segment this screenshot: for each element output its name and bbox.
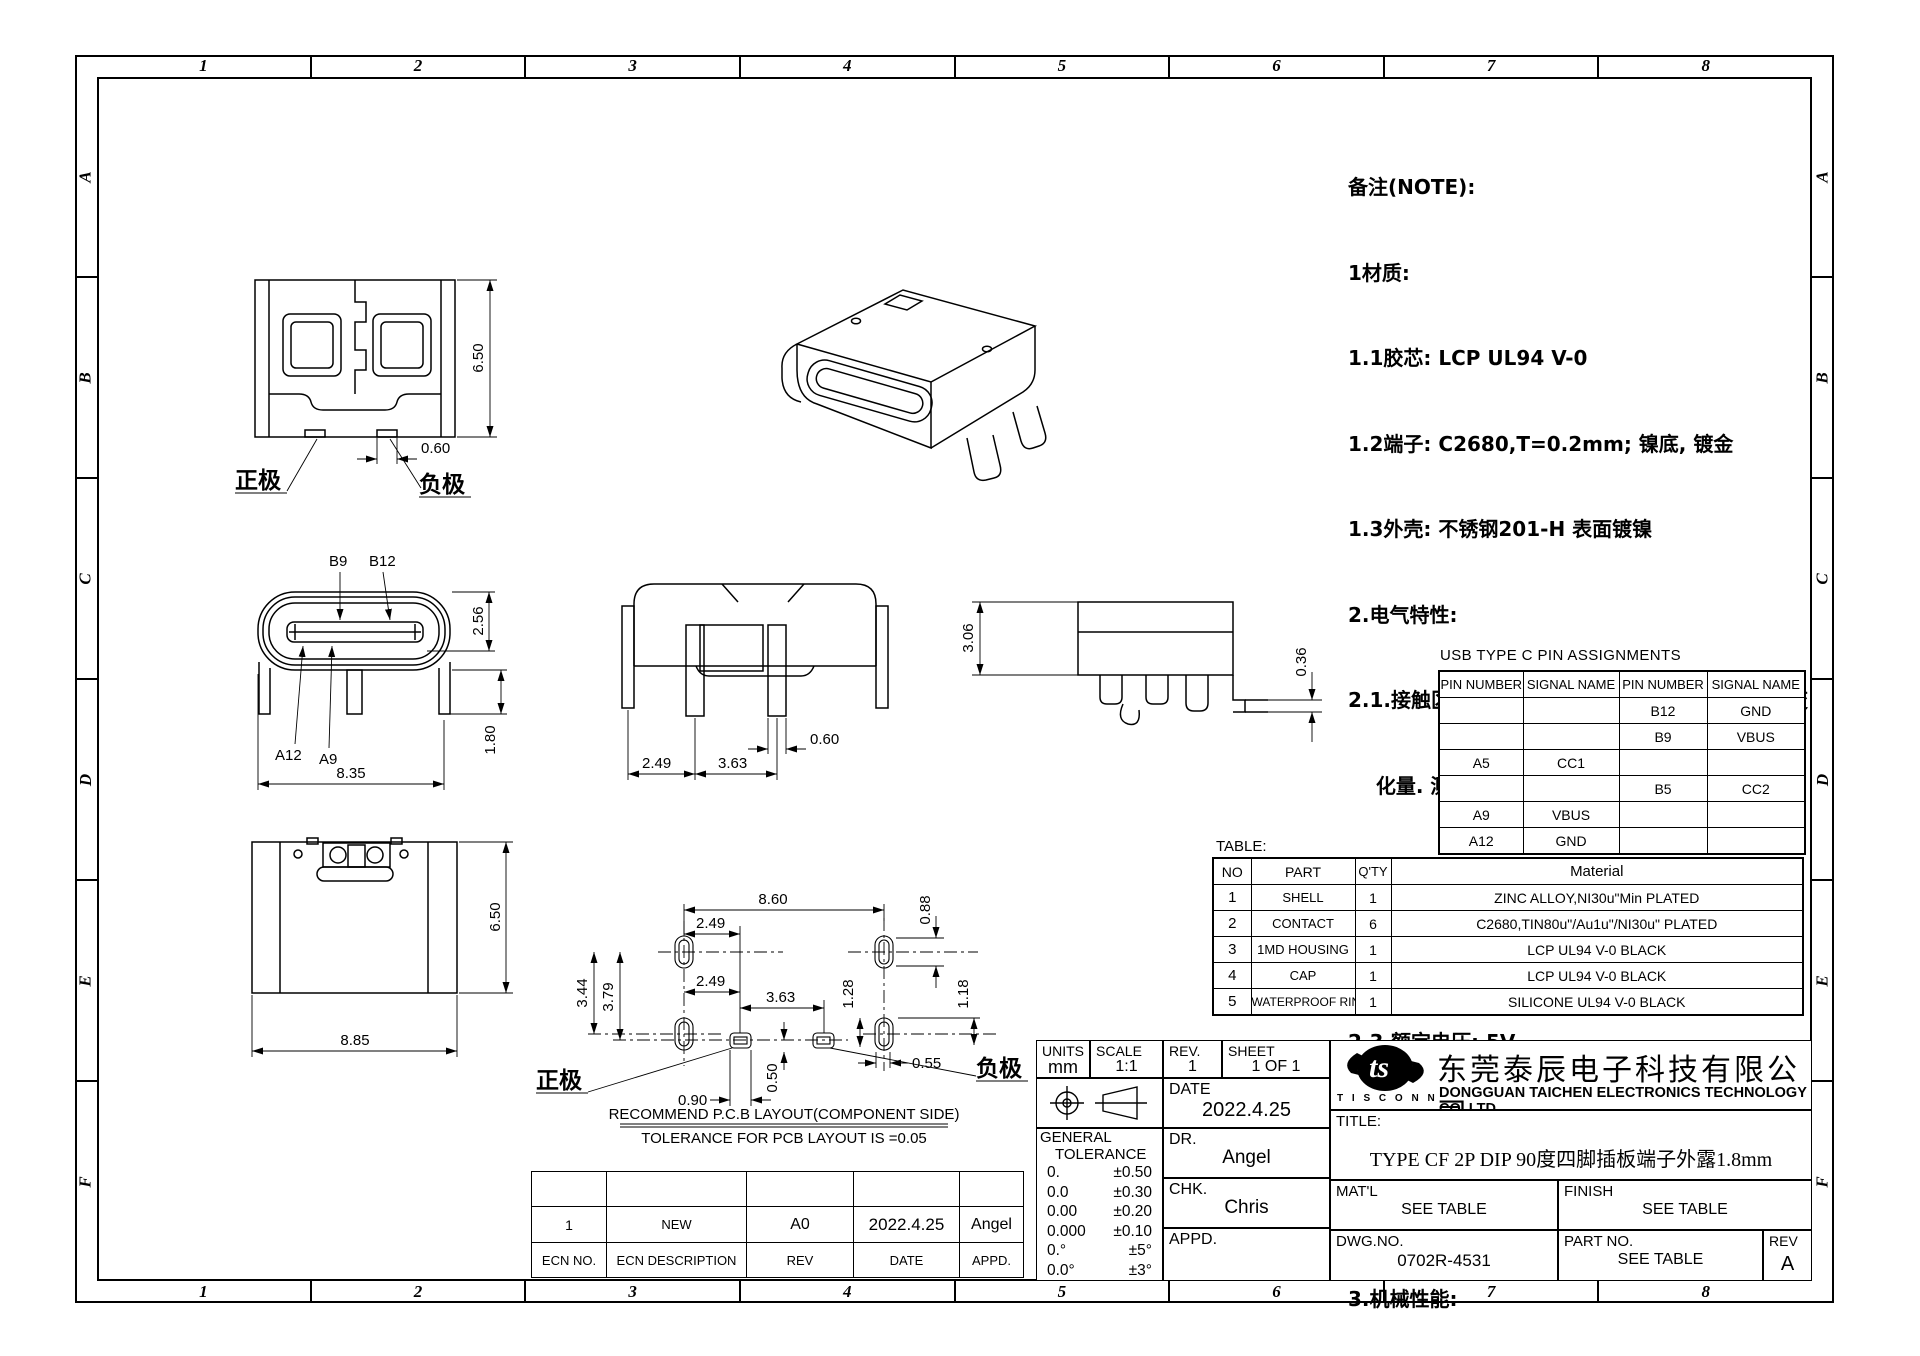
zone-label: 2: [310, 55, 525, 77]
tolerance-title: GENERAL: [1037, 1129, 1162, 1146]
scale-cell: SCALE 1:1: [1090, 1040, 1163, 1078]
table-row: A9VBUS: [1439, 802, 1805, 828]
dim-0-55: 0.55: [912, 1055, 941, 1072]
zone-label: 3: [524, 55, 739, 77]
zone-label: E: [1812, 879, 1834, 1080]
zone-label: C: [1812, 477, 1834, 678]
zone-label: A: [1812, 77, 1834, 276]
table-row: 1NEWA02022.4.25Angel: [532, 1207, 1024, 1243]
isometric-view: [735, 252, 1085, 507]
zone-label: C: [75, 477, 97, 678]
side-view-outline: [1078, 602, 1268, 724]
zone-strip-top: 1 2 3 4 5 6 7 8: [97, 55, 1812, 77]
drawing-sheet: 1 2 3 4 5 6 7 8 1 2 3 4 5 6 7 8 A B C D …: [0, 0, 1920, 1356]
parts-col-header: Q'TY: [1355, 858, 1391, 885]
dr-cell: DR. Angel: [1163, 1128, 1330, 1178]
finish-value: SEE TABLE: [1559, 1201, 1811, 1219]
dim-3-44: 3.44: [574, 978, 591, 1007]
table-row: 2CONTACT6C2680,TIN80u"/Au1u"/NI30u" PLAT…: [1213, 911, 1803, 937]
chk-value: Chris: [1164, 1197, 1329, 1219]
tolerance-row: 0.°±5°: [1037, 1241, 1162, 1261]
zone-strip-right: A B C D E F: [1812, 77, 1834, 1281]
dim-2-49: 2.49: [642, 755, 671, 772]
zone-label: 4: [739, 55, 954, 77]
parts-table-label: TABLE:: [1216, 838, 1267, 855]
finish-cell: FINISH SEE TABLE: [1558, 1180, 1812, 1230]
table-row: B5CC2: [1439, 776, 1805, 802]
third-angle-projection-icon: [1037, 1079, 1161, 1126]
zone-label: A: [75, 77, 97, 276]
dim-3-06: 3.06: [960, 623, 977, 652]
pcb-caption-2: TOLERANCE FOR PCB LAYOUT IS =0.05: [641, 1130, 927, 1147]
top-view: 6.50 8.85: [195, 825, 585, 1080]
part-no-cell: PART NO. SEE TABLE: [1558, 1230, 1763, 1281]
matl-cell: MAT'L SEE TABLE: [1330, 1180, 1558, 1230]
part-no-label: PART NO.: [1564, 1233, 1633, 1250]
zone-label: 7: [1383, 55, 1598, 77]
dim-2-49-mid: 2.49: [696, 973, 725, 990]
sheet-cell: SHEET 1 OF 1: [1222, 1040, 1330, 1078]
negative-label: 负极: [419, 472, 465, 498]
zone-label: 6: [1168, 55, 1383, 77]
note-line: 1.1胶芯: LCP UL94 V-0: [1348, 344, 1808, 373]
rear-view-outline: [622, 584, 888, 716]
table-row: A5CC1: [1439, 750, 1805, 776]
note-line: 1.3外壳: 不锈钢201-H 表面镀镍: [1348, 515, 1808, 544]
table-row: 31MD HOUSING1LCP UL94 V-0 BLACK: [1213, 937, 1803, 963]
side-view: 3.06 0.36: [950, 572, 1325, 807]
table-row: B12GND: [1439, 698, 1805, 724]
units-cell: UNITS mm: [1036, 1040, 1090, 1078]
positive-label: 正极: [536, 1068, 582, 1094]
dim-1-18: 1.18: [955, 979, 972, 1008]
revision-table: 1NEWA02022.4.25Angel ECN NO. ECN DESCRIP…: [531, 1171, 1024, 1278]
pin-assignments-table: PIN NUMBER SIGNAL NAME PIN NUMBER SIGNAL…: [1438, 670, 1806, 855]
dim-1-28: 1.28: [840, 979, 857, 1008]
zone-label: 2: [310, 1281, 525, 1303]
zone-label: 8: [1597, 55, 1812, 77]
note-line: 1.2端子: C2680,T=0.2mm; 镍底, 镀金: [1348, 430, 1808, 459]
zone-label: 3: [524, 1281, 739, 1303]
revision-col-header: ECN DESCRIPTION: [607, 1243, 747, 1278]
dim-0-60: 0.60: [810, 731, 839, 748]
rev-label: REV.: [1169, 1043, 1200, 1059]
rev-letter-cell: REV A: [1763, 1230, 1812, 1281]
dim-6-50: 6.50: [487, 902, 504, 931]
appd-cell: APPD.: [1163, 1228, 1330, 1281]
pin-a9-label: A9: [319, 751, 337, 768]
scale-label: SCALE: [1096, 1043, 1142, 1059]
dim-0-60: 0.60: [421, 440, 450, 457]
date-value: 2022.4.25: [1164, 1099, 1329, 1122]
zone-label: E: [75, 879, 97, 1080]
dim-3-63: 3.63: [766, 989, 795, 1006]
bottom-view-outline: [255, 280, 455, 437]
note-line: 2.电气特性:: [1348, 601, 1808, 630]
zone-label: F: [1812, 1080, 1834, 1281]
rev-cell: REV. 1: [1163, 1040, 1222, 1078]
zone-label: 1: [97, 1281, 310, 1303]
pin-b9-label: B9: [329, 553, 347, 570]
table-row: A12GND: [1439, 828, 1805, 855]
dim-0-88: 0.88: [917, 895, 934, 924]
revision-col-header: DATE: [854, 1243, 960, 1278]
dim-8-35: 8.35: [336, 765, 365, 782]
rear-view: 0.60 2.49 3.63: [598, 558, 918, 803]
dwg-no-value: 0702R-4531: [1331, 1251, 1557, 1271]
rev-letter-value: A: [1764, 1253, 1811, 1276]
side-view-dims: [972, 602, 1322, 742]
parts-col-header: NO: [1213, 858, 1251, 885]
dr-value: Angel: [1164, 1147, 1329, 1169]
parts-col-header: PART: [1251, 858, 1355, 885]
pin-a12-label: A12: [275, 747, 302, 764]
zone-label: D: [1812, 678, 1834, 879]
pcb-caption-1: RECOMMEND P.C.B LAYOUT(COMPONENT SIDE): [609, 1106, 960, 1123]
zone-label: 5: [954, 1281, 1169, 1303]
tolerance-row: 0.0°±3°: [1037, 1261, 1162, 1281]
tolerance-row: 0.000±0.10: [1037, 1222, 1162, 1242]
zone-label: F: [75, 1080, 97, 1281]
front-view-outline: [258, 592, 450, 714]
pin-b12-label: B12: [369, 553, 396, 570]
table-row: 4CAP1LCP UL94 V-0 BLACK: [1213, 963, 1803, 989]
pcb-dims: [536, 904, 1028, 1127]
dim-1-80: 1.80: [482, 725, 499, 754]
top-view-dims: [252, 842, 513, 1057]
part-no-value: SEE TABLE: [1559, 1251, 1762, 1269]
dim-0-36: 0.36: [1293, 647, 1310, 676]
pin-col-header: PIN NUMBER: [1619, 671, 1707, 698]
general-tolerance-cell: GENERAL TOLERANCE 0.±0.50 0.0±0.30 0.00±…: [1036, 1128, 1163, 1281]
company-cell: ts T I S C O N N 东莞泰辰电子科技有限公司 DONGGUAN T…: [1330, 1040, 1812, 1110]
positive-label: 正极: [235, 468, 281, 494]
parts-col-header: Material: [1391, 858, 1803, 885]
revision-col-header: REV: [747, 1243, 854, 1278]
rev-value: 1: [1164, 1058, 1221, 1076]
pin-col-header: PIN NUMBER: [1439, 671, 1523, 698]
date-cell: DATE 2022.4.25: [1163, 1078, 1330, 1128]
dim-8-60: 8.60: [758, 891, 787, 908]
tolerance-row: 0.00±0.20: [1037, 1202, 1162, 1222]
tisconn-logo-icon: ts: [1339, 1043, 1431, 1093]
title-cell: TITLE: TYPE CF 2P DIP 90度四脚插板端子外露1.8mm: [1330, 1110, 1812, 1180]
pcb-layout-view: 8.60 2.49 2.49 3.63 0.88 3.44 3.79 1.28 …: [528, 866, 1063, 1166]
table-row: 1SHELL1ZINC ALLOY,NI30u"Min PLATED: [1213, 885, 1803, 911]
scale-value: 1:1: [1091, 1058, 1162, 1076]
zone-strip-left: A B C D E F: [75, 77, 97, 1281]
zone-label: 5: [954, 55, 1169, 77]
note-line: 备注(NOTE):: [1348, 173, 1808, 202]
pin-table-title: USB TYPE C PIN ASSIGNMENTS: [1440, 647, 1681, 664]
dim-8-85: 8.85: [340, 1032, 369, 1049]
table-row: B9VBUS: [1439, 724, 1805, 750]
units-value: mm: [1037, 1057, 1089, 1078]
tolerance-title: TOLERANCE: [1037, 1146, 1162, 1163]
parts-table: NO PART Q'TY Material 1SHELL1ZINC ALLOY,…: [1212, 857, 1804, 1016]
table-row: [532, 1172, 1024, 1207]
top-view-outline: [252, 838, 457, 993]
rev-letter-label: REV: [1769, 1233, 1798, 1249]
zone-label: 4: [739, 1281, 954, 1303]
isometric-outline: [782, 290, 1046, 480]
bottom-view: 6.50 0.60 正极 负极: [225, 262, 570, 514]
dim-6-50: 6.50: [470, 343, 487, 372]
appd-label: APPD.: [1169, 1231, 1217, 1249]
dim-2-56: 2.56: [470, 606, 487, 635]
dwg-no-cell: DWG.NO. 0702R-4531: [1330, 1230, 1558, 1281]
projection-cell: [1036, 1078, 1163, 1128]
zone-label: D: [75, 678, 97, 879]
tolerance-row: 0.±0.50: [1037, 1163, 1162, 1183]
logo-caption: T I S C O N N: [1337, 1093, 1438, 1104]
front-view: B9 B12 A12 A9 2.56 1.80 8.35: [243, 550, 593, 802]
finish-label: FINISH: [1564, 1183, 1613, 1200]
sheet-label: SHEET: [1228, 1043, 1275, 1059]
title-label: TITLE:: [1336, 1113, 1381, 1130]
tolerance-row: 0.0±0.30: [1037, 1183, 1162, 1203]
zone-label: B: [1812, 276, 1834, 477]
matl-label: MAT'L: [1336, 1183, 1378, 1200]
date-label: DATE: [1169, 1081, 1210, 1099]
drawing-title: TYPE CF 2P DIP 90度四脚插板端子外露1.8mm: [1331, 1143, 1811, 1172]
dim-2-49-top: 2.49: [696, 915, 725, 932]
zone-label: 1: [97, 55, 310, 77]
dwg-no-label: DWG.NO.: [1336, 1233, 1404, 1250]
matl-value: SEE TABLE: [1331, 1201, 1557, 1219]
pin-col-header: SIGNAL NAME: [1523, 671, 1619, 698]
svg-text:ts: ts: [1369, 1051, 1389, 1084]
revision-col-header: ECN NO.: [532, 1243, 607, 1278]
dim-3-79: 3.79: [600, 982, 617, 1011]
dim-0-50: 0.50: [764, 1063, 781, 1092]
dim-3-63: 3.63: [718, 755, 747, 772]
note-line: 1材质:: [1348, 259, 1808, 288]
revision-col-header: APPD.: [960, 1243, 1024, 1278]
zone-label: B: [75, 276, 97, 477]
note-line: 3.机械性能:: [1348, 1285, 1808, 1314]
pin-col-header: SIGNAL NAME: [1707, 671, 1805, 698]
chk-cell: CHK. Chris: [1163, 1178, 1330, 1228]
negative-label: 负极: [976, 1056, 1022, 1082]
table-row: 5WATERPROOF RING1SILICONE UL94 V-0 BLACK: [1213, 989, 1803, 1016]
sheet-value: 1 OF 1: [1223, 1058, 1329, 1076]
